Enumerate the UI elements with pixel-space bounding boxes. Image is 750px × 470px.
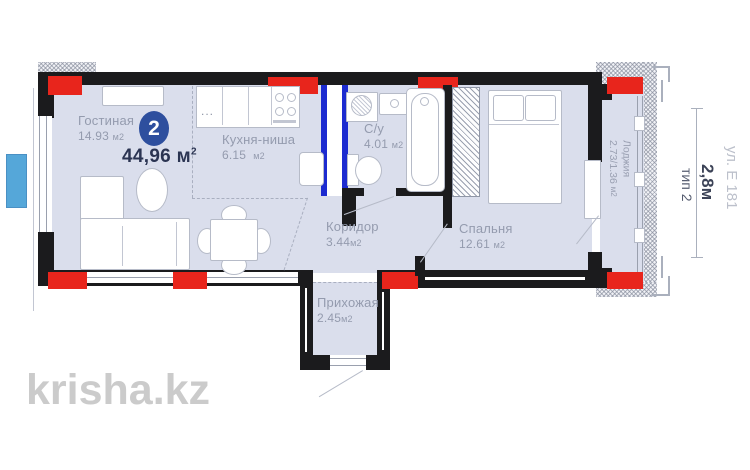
room-label-living: Гостиная 14.93 м2	[78, 114, 134, 143]
tv-console	[102, 86, 164, 106]
counter-line	[271, 87, 272, 125]
counter-line	[248, 87, 249, 125]
neighbour-line	[652, 294, 670, 296]
room-name: Лоджия	[619, 140, 632, 197]
toilet-bowl	[355, 156, 382, 185]
room-name: С/у	[364, 122, 403, 137]
watermark: krisha.kz	[26, 366, 210, 415]
room-name: Гостиная	[78, 114, 134, 129]
dimension-tick	[691, 108, 703, 109]
sofa-cushion-line	[122, 226, 123, 266]
neighbour-line	[668, 66, 670, 82]
room-label-bedroom: Спальня 12.61 м2	[459, 222, 513, 251]
window-left	[36, 116, 52, 232]
stove-burner	[287, 107, 296, 116]
room-name: Спальня	[459, 222, 513, 237]
wall-left-lower	[38, 232, 54, 274]
red-block	[607, 272, 643, 289]
wall-top	[38, 72, 600, 85]
stove-burner	[287, 93, 296, 102]
entrance-jamb-right	[366, 355, 390, 370]
bathtub-drain	[420, 97, 429, 106]
neighbour-line	[661, 256, 663, 278]
wall-stripe	[305, 288, 307, 352]
street-label: ул. Е 181	[723, 146, 740, 209]
pouf	[136, 168, 168, 212]
rooms-count-badge: 2	[139, 111, 169, 146]
floor-plan: ... Гостиная 14.93 м2 2 44,96 м2 Кухня-н…	[0, 0, 750, 470]
red-block	[607, 77, 643, 94]
kitchen-sink	[299, 152, 324, 186]
neighbour-line	[661, 80, 663, 102]
stove-front	[273, 120, 296, 123]
entrance-door-swing	[319, 370, 363, 397]
sofa-armrest-line	[176, 222, 177, 266]
radiator	[584, 160, 601, 219]
window-marker	[6, 154, 27, 208]
washing-machine-drum	[351, 95, 372, 116]
hatch-loggia-right	[644, 62, 657, 297]
plan-type-label: тип 2	[679, 168, 695, 202]
red-block	[382, 272, 418, 289]
neighbour-line	[668, 276, 670, 296]
red-block	[173, 272, 207, 289]
window-bottom-1	[87, 272, 173, 283]
zone-dash-vertical	[192, 86, 193, 198]
room-name: Коридор	[326, 220, 379, 235]
dimension-tick	[691, 257, 703, 258]
red-block	[48, 272, 87, 289]
window-bottom-2	[207, 272, 298, 283]
dining-table	[210, 219, 258, 261]
stove-burner	[275, 93, 284, 102]
room-name: Прихожая	[317, 296, 379, 311]
entrance-door-opening	[330, 355, 366, 370]
drawer-handle-dots: ...	[201, 104, 214, 118]
loggia-mullion	[634, 116, 645, 131]
red-block	[48, 76, 82, 95]
sink-drain	[390, 99, 399, 108]
room-name: Кухня-ниша	[222, 133, 295, 148]
loggia-mullion	[634, 228, 645, 243]
room-label-loggia: Лоджия 2.73/1.36 м2	[606, 140, 632, 197]
room-label-kitchen: Кухня-ниша 6.15 м2	[222, 133, 295, 162]
riser-shaft	[327, 85, 342, 196]
sofa-seat	[80, 218, 190, 270]
wall-inner-stripe	[425, 277, 585, 280]
pillow	[493, 95, 524, 121]
blanket-line	[489, 124, 559, 125]
bedroom-door-jamb	[415, 256, 425, 276]
room-label-hallway: Прихожая 2.45м2	[317, 296, 379, 325]
wall-bathroom-bottom-left	[342, 188, 364, 196]
stove-burner	[275, 107, 284, 116]
hallway-dash	[313, 282, 377, 283]
width-dimension-label: 2,8м	[697, 164, 717, 200]
counter-line	[222, 87, 223, 125]
loggia-mullion	[634, 172, 645, 187]
bathtub-inner	[411, 93, 439, 186]
room-label-bathroom: С/у 4.01 м2	[364, 122, 403, 151]
zone-dash-horizontal	[192, 198, 308, 199]
wardrobe	[452, 87, 480, 197]
entrance-jamb-left	[300, 355, 330, 370]
pillow	[525, 95, 556, 121]
total-area: 44,96 м2	[122, 146, 197, 168]
wall-stripe	[382, 292, 384, 350]
room-label-corridor: Коридор 3.44м2	[326, 220, 379, 249]
facade-line	[33, 88, 34, 311]
